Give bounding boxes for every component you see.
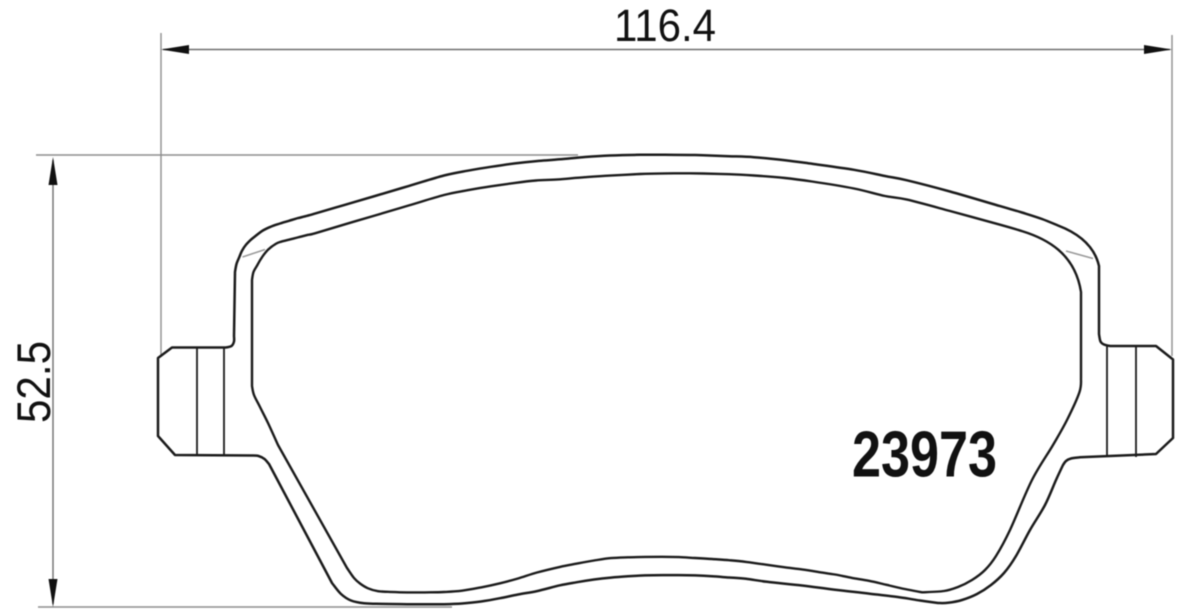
svg-text:23973: 23973 [852,418,997,491]
svg-text:116.4: 116.4 [614,0,716,51]
svg-text:52.5: 52.5 [7,341,60,423]
